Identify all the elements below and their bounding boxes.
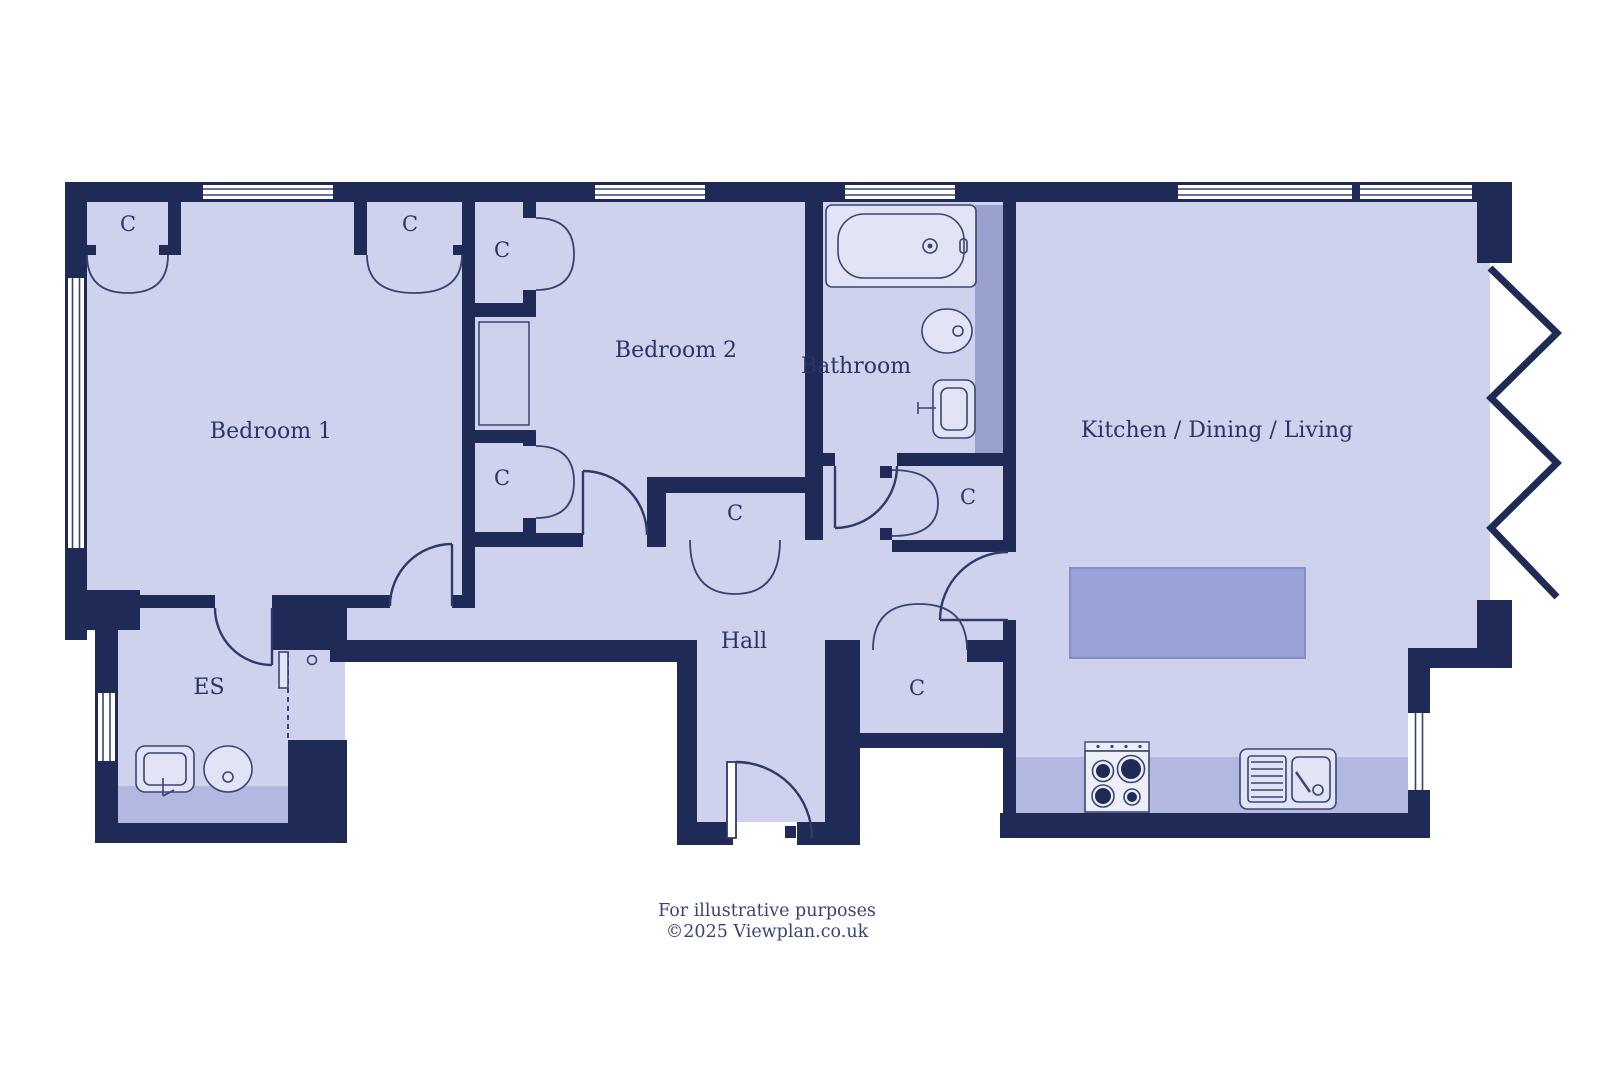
window-bedroom1-top [203, 185, 333, 199]
closet-label: C [960, 485, 976, 509]
wall-ensuite-corner-block [288, 740, 347, 843]
bathtub-icon [826, 205, 976, 287]
closet-label: C [727, 501, 743, 525]
entry-door-stop-left [716, 826, 727, 838]
floor-entry-corridor [697, 662, 825, 822]
wall-kitchen-bottom [1000, 813, 1430, 838]
room-label-bathroom: Bathroom [801, 354, 911, 379]
footer: For illustrative purposes ©2025 Viewplan… [658, 901, 876, 942]
footer-copyright: ©2025 Viewplan.co.uk [666, 922, 869, 942]
entry-door-stop-right [785, 826, 796, 838]
room-label-hall: Hall [721, 629, 767, 654]
closet-label: C [494, 238, 510, 262]
closet-label: C [402, 212, 418, 236]
window-kitchen-top [1178, 182, 1472, 202]
window-kitchen-bottom-right [1411, 713, 1427, 790]
service-duct-strip [975, 205, 1003, 453]
window-bathroom-top [845, 185, 955, 199]
window-ensuite-left [98, 693, 115, 761]
wall-closet1-right [168, 202, 181, 255]
wall-column-left [462, 202, 475, 608]
toilet-icon-ensuite [204, 746, 252, 792]
wall-hall-closet-bottom [845, 733, 1016, 748]
wall-right-top-block [1477, 182, 1512, 263]
floor-areas [87, 202, 1490, 823]
room-label-ensuite: ES [193, 675, 224, 700]
closet-label: C [909, 676, 925, 700]
toilet-icon-bathroom [922, 309, 972, 353]
room-label-bedroom-2: Bedroom 2 [615, 338, 737, 363]
room-label-bedroom-1: Bedroom 1 [210, 419, 332, 444]
floor-plan-page: Bedroom 1 Bedroom 2 Bathroom Kitchen / D… [0, 0, 1620, 1080]
window-mullion [1352, 182, 1360, 202]
footer-disclaimer: For illustrative purposes [658, 901, 876, 921]
sink-icon-ensuite [136, 746, 194, 796]
wall-kitchen-left-lower [1003, 620, 1016, 745]
window-bedroom2-top [595, 185, 705, 199]
floor-plan-svg: Bedroom 1 Bedroom 2 Bathroom Kitchen / D… [0, 0, 1620, 1080]
floor-bedroom-2 [536, 202, 805, 547]
closet-label: C [120, 212, 136, 236]
kitchen-island [1070, 568, 1305, 658]
window-bedroom1-left [68, 278, 84, 548]
hob-icon [1085, 742, 1149, 812]
wall-ensuite-bottom [95, 823, 313, 843]
room-label-kitchen: Kitchen / Dining / Living [1081, 418, 1353, 443]
wall-kitchen-left-upper [1003, 202, 1016, 552]
wall-hall-bottom [330, 640, 697, 662]
kitchen-counter [1016, 757, 1408, 813]
kitchen-sink-icon [1240, 749, 1336, 809]
bifold-glass-doors-icon [1490, 268, 1557, 597]
wall-kitchen-door [892, 540, 1016, 552]
wall-corridor-left [677, 662, 697, 822]
closet-label: C [494, 466, 510, 490]
